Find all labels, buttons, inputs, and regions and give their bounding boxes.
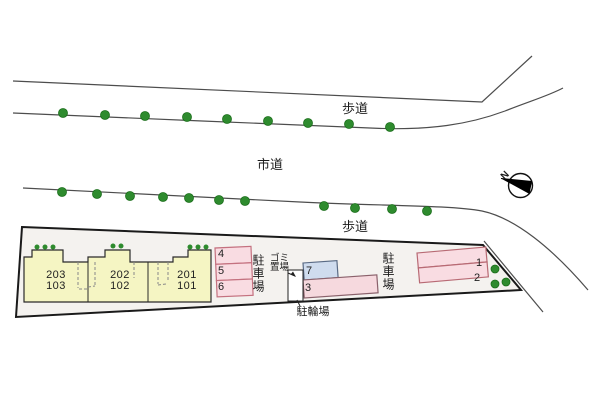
tree-dot: [304, 119, 313, 128]
tree-dot: [58, 188, 67, 197]
tree-dot: [264, 117, 273, 126]
label-sidewalk-bottom: 歩道: [330, 220, 380, 234]
tree-dot: [141, 112, 150, 121]
tree-dot: [159, 193, 168, 202]
tree-dot: [93, 190, 102, 199]
stall-number-1: 1: [476, 258, 482, 269]
tree-dot: [101, 111, 110, 120]
unit-label-201-101: 201 101: [165, 270, 209, 292]
shrub-dot: [188, 245, 193, 250]
shrub-dot: [111, 244, 116, 249]
tree-dot: [345, 120, 354, 129]
stall-number-5: 5: [218, 266, 224, 277]
unit-102: 102: [98, 281, 142, 292]
unit-101: 101: [165, 281, 209, 292]
tree-dot: [386, 123, 395, 132]
tree-dot: [320, 202, 329, 211]
tree-dot: [491, 265, 499, 273]
label-parking-right: 駐車場: [381, 252, 394, 291]
sidewalk-curb-top: [13, 88, 563, 129]
label-bicycle-parking: 駐輪場: [283, 305, 343, 319]
label-sidewalk-top: 歩道: [330, 102, 380, 116]
unit-103: 103: [34, 281, 78, 292]
tree-dot: [423, 207, 432, 216]
shrub-dot: [204, 245, 209, 250]
site-plan-drawing: [0, 0, 600, 400]
tree-dot: [215, 196, 224, 205]
label-garbage: ゴミ 置場: [259, 255, 289, 272]
tree-dot: [59, 109, 68, 118]
shrub-dot: [196, 245, 201, 250]
tree-dot: [126, 192, 135, 201]
unit-label-202-102: 202 102: [98, 270, 142, 292]
street-trees-bottom: [58, 188, 432, 216]
tree-dot: [491, 280, 499, 288]
tree-dot: [183, 113, 192, 122]
tree-dot: [388, 205, 397, 214]
tree-dot: [241, 197, 250, 206]
shrub-dot: [43, 245, 48, 250]
tree-dot: [502, 278, 510, 286]
label-city-road: 市道: [245, 158, 295, 172]
shrub-dot: [51, 245, 56, 250]
road-line-top: [13, 56, 532, 102]
stall-number-6: 6: [218, 282, 224, 293]
stall-number-7: 7: [306, 266, 312, 277]
stall-number-2: 2: [474, 273, 480, 284]
label-garbage-line2: 置場: [259, 264, 289, 273]
garbage-bicycle-box: [288, 270, 303, 301]
site-plan: 歩道 市道 歩道 駐車場 駐車場 ゴミ 置場 駐輪場 203 103 202 1…: [0, 0, 600, 400]
unit-label-203-103: 203 103: [34, 270, 78, 292]
stall-number-4: 4: [218, 249, 224, 260]
tree-dot: [223, 115, 232, 124]
shrub-dot: [35, 245, 40, 250]
stall-number-3: 3: [305, 283, 311, 294]
tree-dot: [351, 204, 360, 213]
tree-dot: [185, 194, 194, 203]
shrub-dot: [119, 244, 124, 249]
